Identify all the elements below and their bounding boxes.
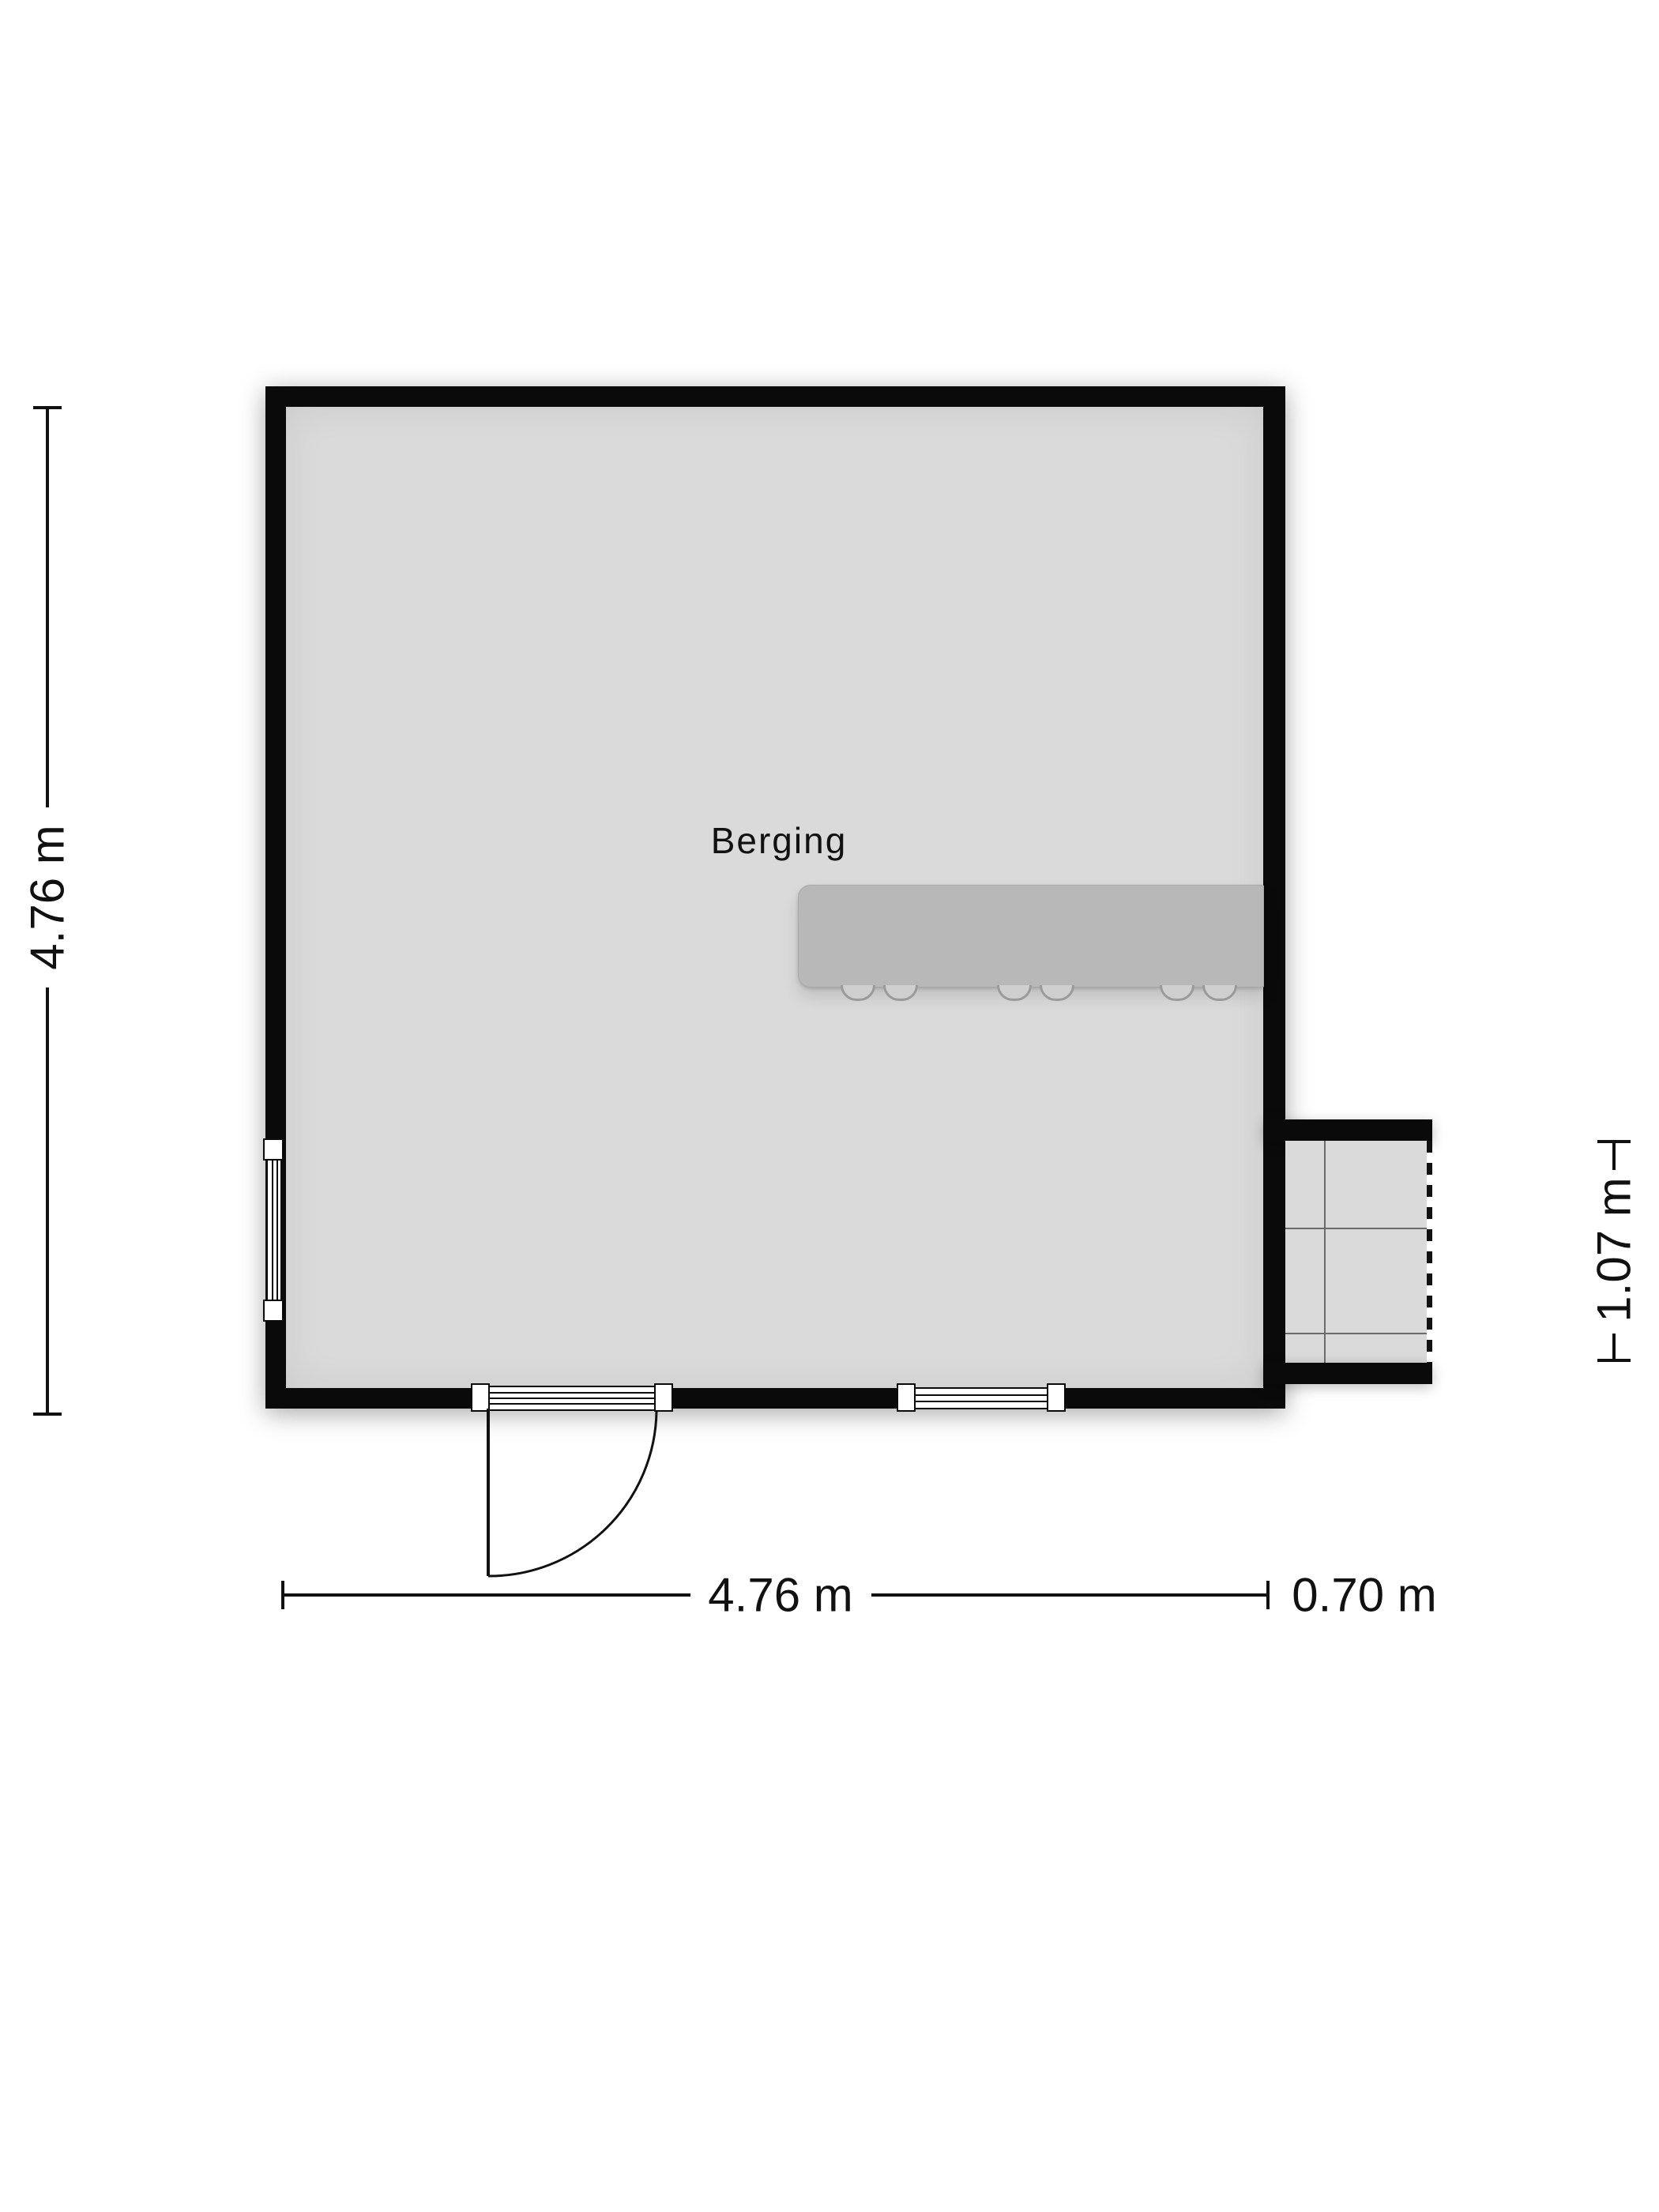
door-jamb <box>654 1383 673 1412</box>
workbench <box>798 885 1264 987</box>
dim-label-right: 1.07 m <box>1587 1177 1642 1322</box>
open-side-dashed-edge <box>1427 1141 1432 1363</box>
extension-wall-top <box>1264 1119 1432 1141</box>
glazing-line <box>916 1401 1047 1402</box>
window-left-glazing <box>266 1159 282 1301</box>
dim-label-left: 4.76 m <box>21 825 75 969</box>
room-label: Berging <box>711 819 848 862</box>
dim-line-bottom <box>871 1593 1268 1597</box>
entry-door-glazing <box>488 1386 656 1411</box>
dim-cap <box>33 1413 62 1416</box>
window-bottom-jamb <box>1047 1383 1066 1412</box>
extension-floor <box>1285 1141 1427 1363</box>
glazing-line <box>916 1394 1047 1396</box>
dim-line-bottom <box>283 1593 690 1597</box>
extension-wall-bottom <box>1264 1363 1432 1384</box>
dim-line-right <box>1612 1142 1616 1170</box>
window-bottom-glazing <box>914 1387 1048 1409</box>
door-swing-arc <box>488 1412 656 1576</box>
glazing-line <box>276 1161 278 1300</box>
glazing-line <box>490 1392 654 1394</box>
glazing-line <box>490 1403 654 1405</box>
dim-cap <box>1266 1581 1270 1609</box>
dim-cap <box>1597 1359 1631 1362</box>
glazing-line <box>490 1398 654 1399</box>
floorplan-canvas: Berging 4.76 m 4. <box>0 0 1659 2212</box>
glazing-line <box>272 1161 273 1300</box>
dim-line-left <box>46 987 49 1414</box>
extension-shelf-line-vertical <box>1324 1141 1326 1363</box>
dim-line-right <box>1612 1334 1616 1360</box>
dim-label-bottom-main: 4.76 m <box>708 1568 852 1623</box>
dim-line-left <box>46 408 49 807</box>
extension-shelf-line-horizontal <box>1285 1228 1427 1229</box>
door-jamb <box>471 1383 490 1412</box>
window-left-jamb <box>263 1138 284 1161</box>
dim-label-bottom-extension: 0.70 m <box>1292 1568 1436 1623</box>
window-left-jamb <box>263 1300 284 1322</box>
window-bottom-jamb <box>897 1383 916 1412</box>
extension-shelf-line-horizontal <box>1285 1333 1427 1334</box>
